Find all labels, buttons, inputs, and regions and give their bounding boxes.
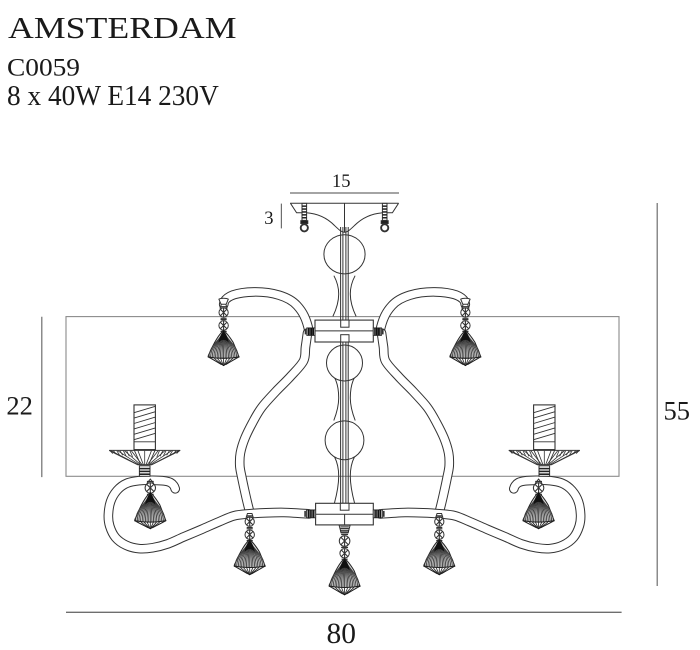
svg-text:22: 22 [6,391,33,421]
svg-text:15: 15 [332,172,351,192]
svg-text:AMSTERDAM: AMSTERDAM [8,11,236,45]
svg-text:3: 3 [264,209,273,229]
svg-text:80: 80 [326,618,356,650]
svg-text:55: 55 [664,396,691,426]
svg-text:8 x 40W E14 230V: 8 x 40W E14 230V [7,81,219,112]
svg-text:C0059: C0059 [7,53,80,82]
